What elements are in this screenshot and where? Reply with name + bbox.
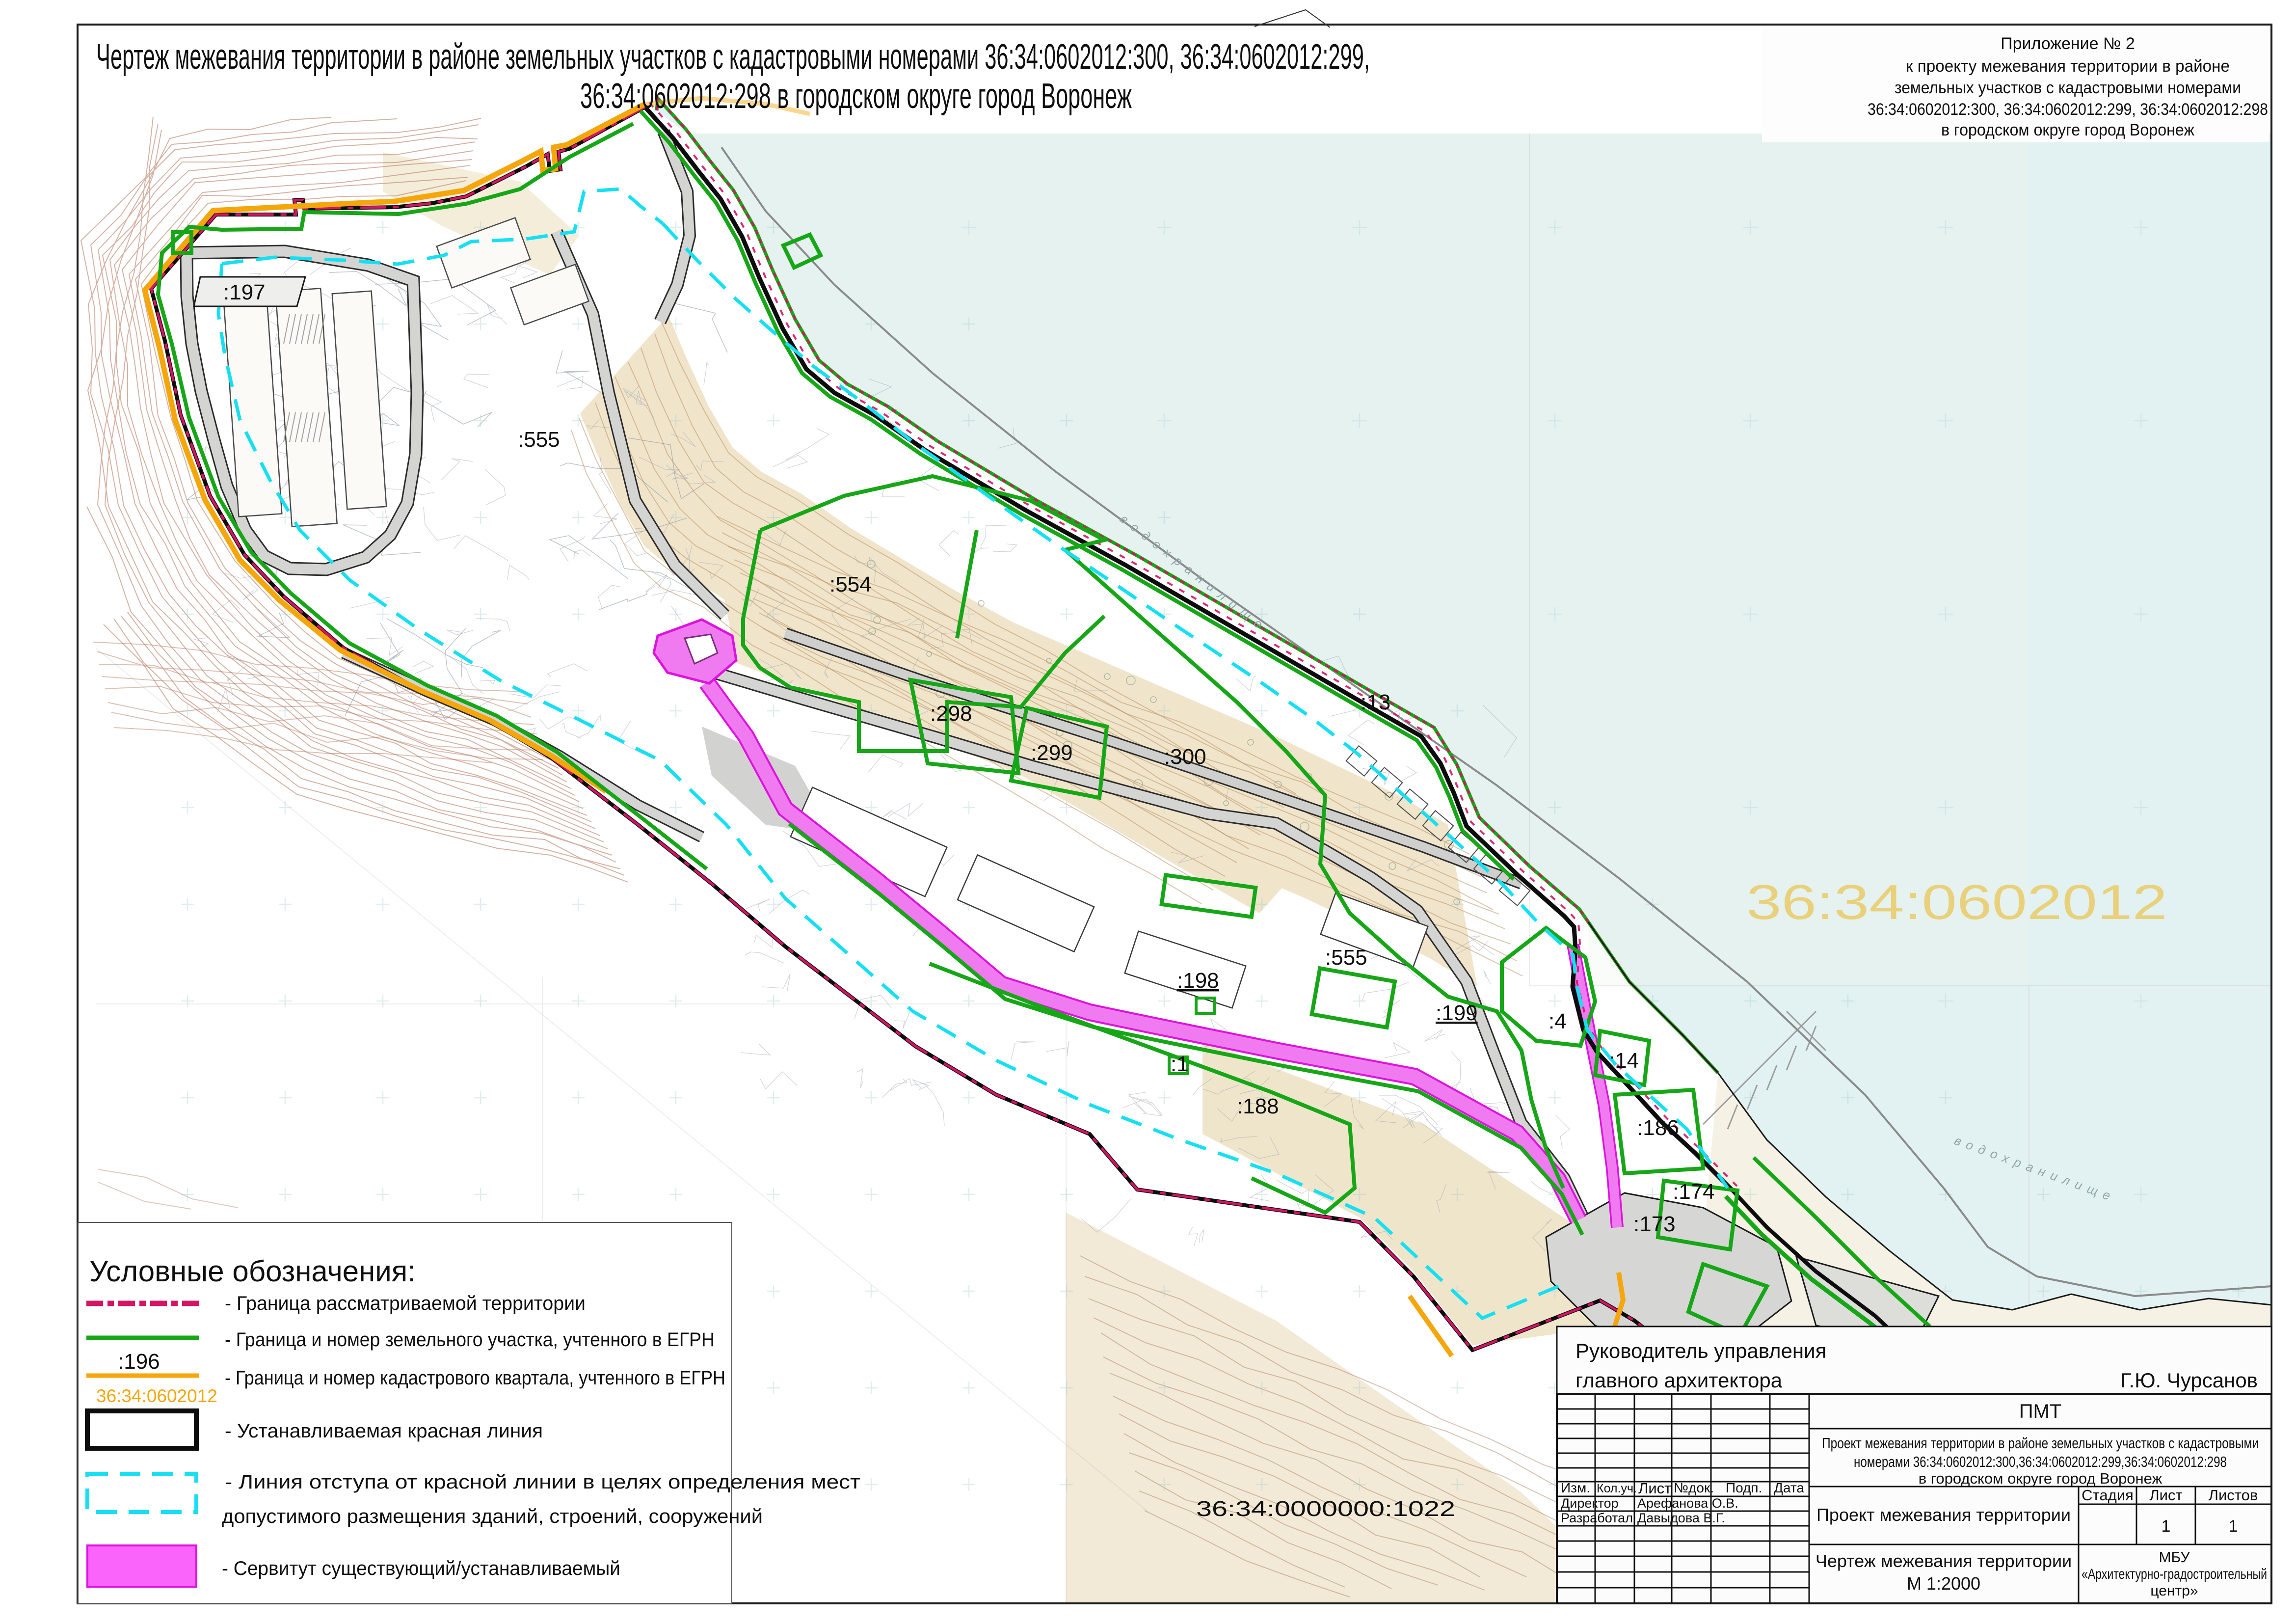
- svg-text:- Граница и номер земельного: - Граница и номер земельного участка, уч…: [225, 1329, 715, 1351]
- svg-text:Дата: Дата: [1774, 1480, 1804, 1495]
- svg-text:Г.Ю. Чурсанов: Г.Ю. Чурсанов: [2120, 1369, 2258, 1392]
- svg-text::555: :555: [1325, 946, 1367, 970]
- svg-text:к проекту межевания территории: к проекту межевания территории в районе: [1906, 57, 2230, 76]
- svg-text:МБУ: МБУ: [2159, 1549, 2190, 1566]
- svg-text:36:34:0602012: 36:34:0602012: [96, 1386, 217, 1406]
- svg-text::300: :300: [1164, 745, 1206, 769]
- svg-text:№док.: №док.: [1674, 1480, 1714, 1495]
- svg-text::1: :1: [1171, 1052, 1189, 1076]
- svg-text:1: 1: [2229, 1517, 2238, 1536]
- svg-text:Стадия: Стадия: [2082, 1487, 2134, 1504]
- svg-text::555: :555: [518, 428, 560, 452]
- svg-text::198: :198: [1177, 969, 1219, 993]
- svg-text:Кол.уч.: Кол.уч.: [1597, 1482, 1637, 1495]
- svg-text::186: :186: [1637, 1116, 1679, 1140]
- svg-text:Арефанова О.В.: Арефанова О.В.: [1637, 1496, 1738, 1511]
- svg-text::174: :174: [1673, 1180, 1715, 1204]
- svg-text:центр»: центр»: [2150, 1583, 2198, 1599]
- svg-text:земельных участков с кадастров: земельных участков с кадастровыми номера…: [1895, 79, 2241, 97]
- svg-text::4: :4: [1548, 1009, 1567, 1033]
- svg-text:- Сервитут существующий/устана: - Сервитут существующий/устанавливаемый: [222, 1558, 620, 1579]
- svg-text:ПМТ: ПМТ: [2019, 1401, 2062, 1422]
- svg-text::199: :199: [1436, 1001, 1478, 1025]
- svg-text::197: :197: [223, 280, 266, 304]
- svg-text:36:34:0000000:1022: 36:34:0000000:1022: [1196, 1497, 1455, 1521]
- svg-text:Проект межевания территории: Проект межевания территории: [1816, 1505, 2071, 1525]
- svg-text::14: :14: [1609, 1049, 1639, 1073]
- svg-text:- Линия отступа от красной: - Линия отступа от красной линии в целях…: [225, 1471, 860, 1493]
- svg-text:«Архитектурно-градостроительны: «Архитектурно-градостроительный: [2082, 1566, 2267, 1582]
- svg-text:Чертеж межевания территории в: Чертеж межевания территории в районе зем…: [96, 37, 1370, 77]
- svg-text:Руководитель управления: Руководитель управления: [1575, 1339, 1826, 1362]
- svg-text:в городском округе город Ворон: в городском округе город Воронеж: [1919, 1470, 2163, 1487]
- svg-text:Директор: Директор: [1561, 1496, 1619, 1511]
- svg-text:Лист: Лист: [2149, 1487, 2182, 1504]
- svg-text:Условные обозначения:: Условные обозначения:: [89, 1255, 416, 1288]
- svg-text:36:34:0602012: 36:34:0602012: [1746, 875, 2167, 930]
- svg-text:М 1:2000: М 1:2000: [1907, 1573, 1980, 1594]
- svg-text:Проект межевания территории в: Проект межевания территории в районе зем…: [1822, 1435, 2259, 1452]
- svg-text::188: :188: [1237, 1094, 1279, 1118]
- svg-text:1: 1: [2162, 1517, 2171, 1536]
- svg-text:Лист: Лист: [1638, 1480, 1671, 1497]
- svg-text:номерами 36:34:0602012:300,36:: номерами 36:34:0602012:300,36:34:0602012…: [1854, 1453, 2227, 1470]
- svg-text:36:34:0602012:300, 36:34:06020: 36:34:0602012:300, 36:34:0602012:299, 36…: [1868, 100, 2268, 119]
- svg-text:36:34:0602012:298 в городском: 36:34:0602012:298 в городском округе гор…: [580, 77, 1132, 116]
- svg-text::298: :298: [930, 702, 972, 726]
- svg-text:- Граница рассматриваемой тер: - Граница рассматриваемой территории: [225, 1293, 586, 1314]
- svg-text:Разработал: Разработал: [1561, 1511, 1633, 1525]
- svg-text:Давыдова В.Г.: Давыдова В.Г.: [1637, 1511, 1725, 1525]
- svg-text::13: :13: [1361, 690, 1390, 714]
- svg-text:допустимого размещения зданий,: допустимого размещения зданий, строений,…: [222, 1506, 763, 1527]
- svg-text:- Устанавливаемая красная лин: - Устанавливаемая красная линия: [225, 1420, 543, 1442]
- svg-text:Изм.: Изм.: [1561, 1480, 1590, 1495]
- svg-text::554: :554: [829, 572, 872, 596]
- svg-text:- Граница и номер кадастровог: - Граница и номер кадастрового квартала,…: [225, 1367, 725, 1389]
- svg-text::196: :196: [118, 1350, 160, 1374]
- svg-text:Листов: Листов: [2209, 1487, 2258, 1504]
- svg-text::173: :173: [1633, 1212, 1676, 1236]
- svg-text:главного архитектора: главного архитектора: [1575, 1369, 1783, 1392]
- svg-text:в городском округе город Ворон: в городском округе город Воронеж: [1941, 121, 2194, 139]
- svg-text:Приложение № 2: Приложение № 2: [2001, 34, 2135, 53]
- svg-text:Подп.: Подп.: [1726, 1480, 1762, 1495]
- svg-text:Чертеж межевания территории: Чертеж межевания территории: [1815, 1551, 2072, 1571]
- svg-text::299: :299: [1031, 741, 1073, 765]
